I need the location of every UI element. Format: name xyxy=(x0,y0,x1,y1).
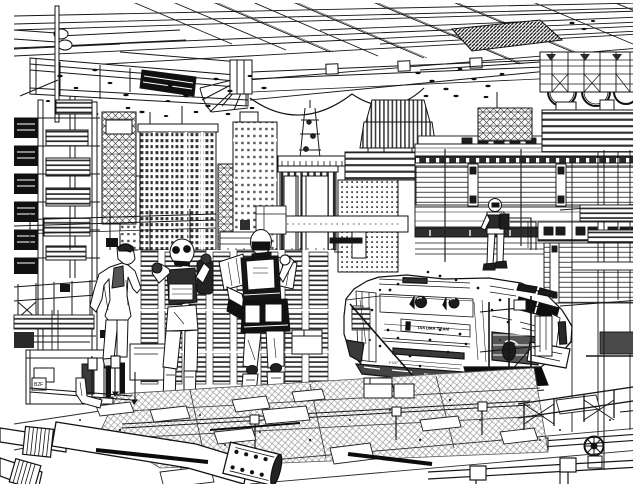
svg-text:F437: F437 xyxy=(389,360,399,365)
svg-text:B2F: B2F xyxy=(34,382,43,388)
